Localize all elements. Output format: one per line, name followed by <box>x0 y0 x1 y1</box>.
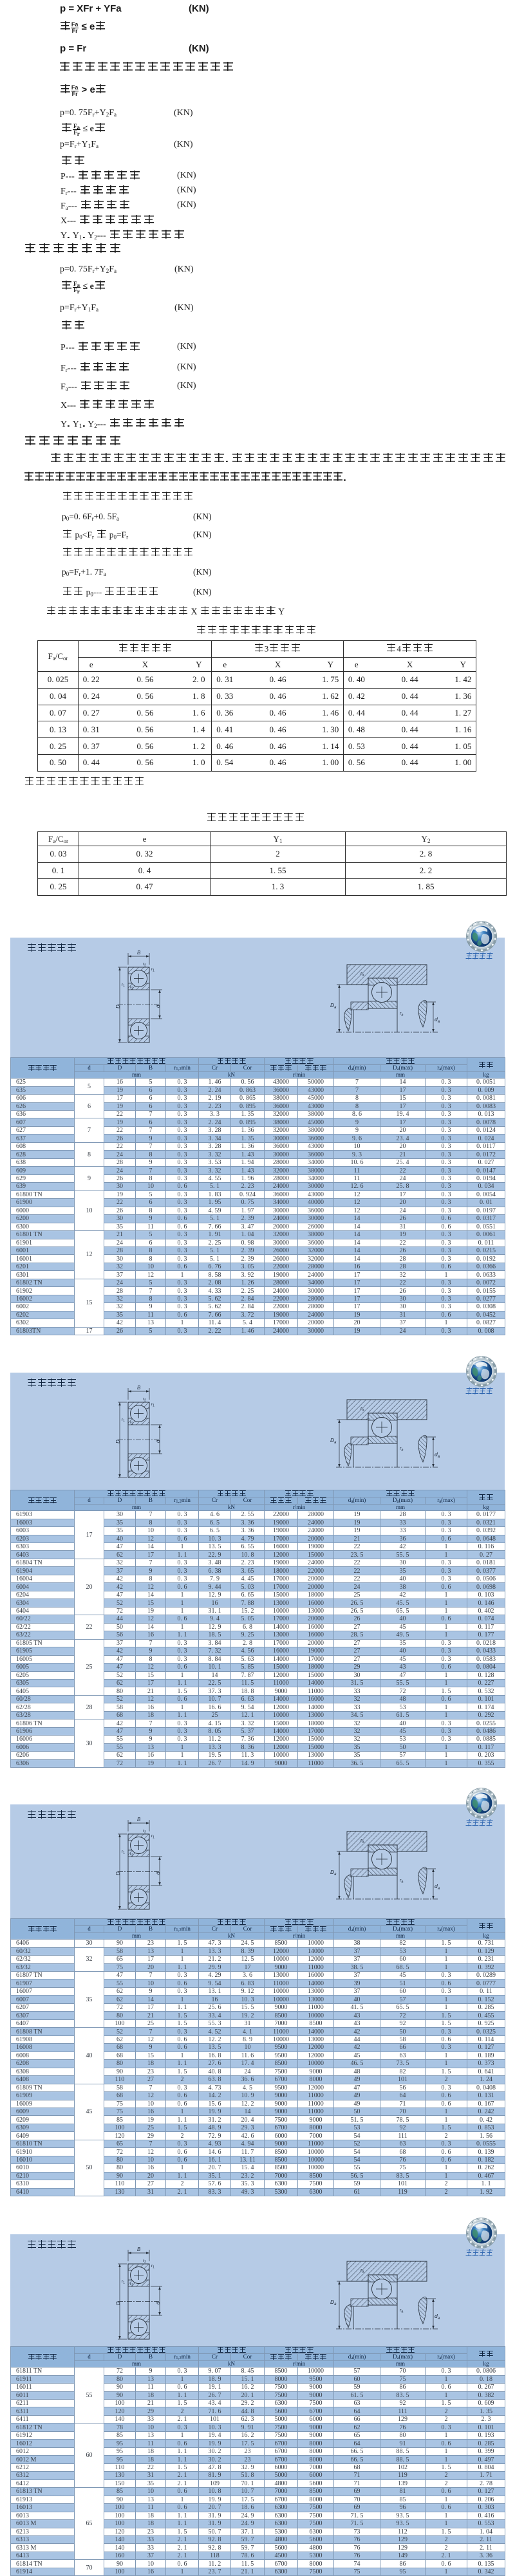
svg-text:Da: Da <box>330 1437 337 1445</box>
svg-text:r2: r2 <box>143 1829 146 1835</box>
svg-text:Da: Da <box>330 1002 337 1010</box>
svg-text:r1: r1 <box>122 2279 125 2285</box>
svg-text:B: B <box>137 1817 141 1822</box>
svg-text:da: da <box>435 2313 440 2321</box>
svg-text:D: D <box>115 1871 121 1875</box>
svg-text:ra: ra <box>400 1012 403 1017</box>
svg-text:da: da <box>435 1451 440 1459</box>
svg-text:r2: r2 <box>143 2259 146 2265</box>
svg-text:r1: r1 <box>122 983 125 988</box>
svg-text:B: B <box>137 1385 141 1391</box>
svg-text:ra: ra <box>400 1878 403 1884</box>
svg-text:r1: r1 <box>151 1402 154 1408</box>
svg-text:Da: Da <box>330 1869 337 1876</box>
svg-text:B: B <box>137 2247 141 2252</box>
svg-text:d: d <box>155 1871 161 1875</box>
svg-text:r1: r1 <box>122 1418 125 1423</box>
svg-text:r2: r2 <box>143 1397 146 1403</box>
svg-text:ra: ra <box>400 2308 403 2314</box>
svg-text:d: d <box>155 1005 161 1008</box>
svg-text:r1: r1 <box>151 2264 154 2270</box>
svg-text:D: D <box>115 1440 121 1443</box>
svg-text:r2: r2 <box>143 962 146 968</box>
svg-text:d: d <box>155 2301 161 2304</box>
svg-text:d: d <box>155 1440 161 1443</box>
svg-text:D: D <box>115 1005 121 1008</box>
svg-text:r1: r1 <box>122 1849 125 1855</box>
svg-text:da: da <box>435 1016 440 1024</box>
svg-text:da: da <box>435 1883 440 1891</box>
svg-text:ra: ra <box>400 1447 403 1452</box>
svg-text:B: B <box>137 950 141 956</box>
svg-text:D: D <box>115 2301 121 2305</box>
svg-text:Da: Da <box>330 2299 337 2306</box>
svg-text:r1: r1 <box>151 967 154 973</box>
svg-text:r1: r1 <box>151 1834 154 1840</box>
